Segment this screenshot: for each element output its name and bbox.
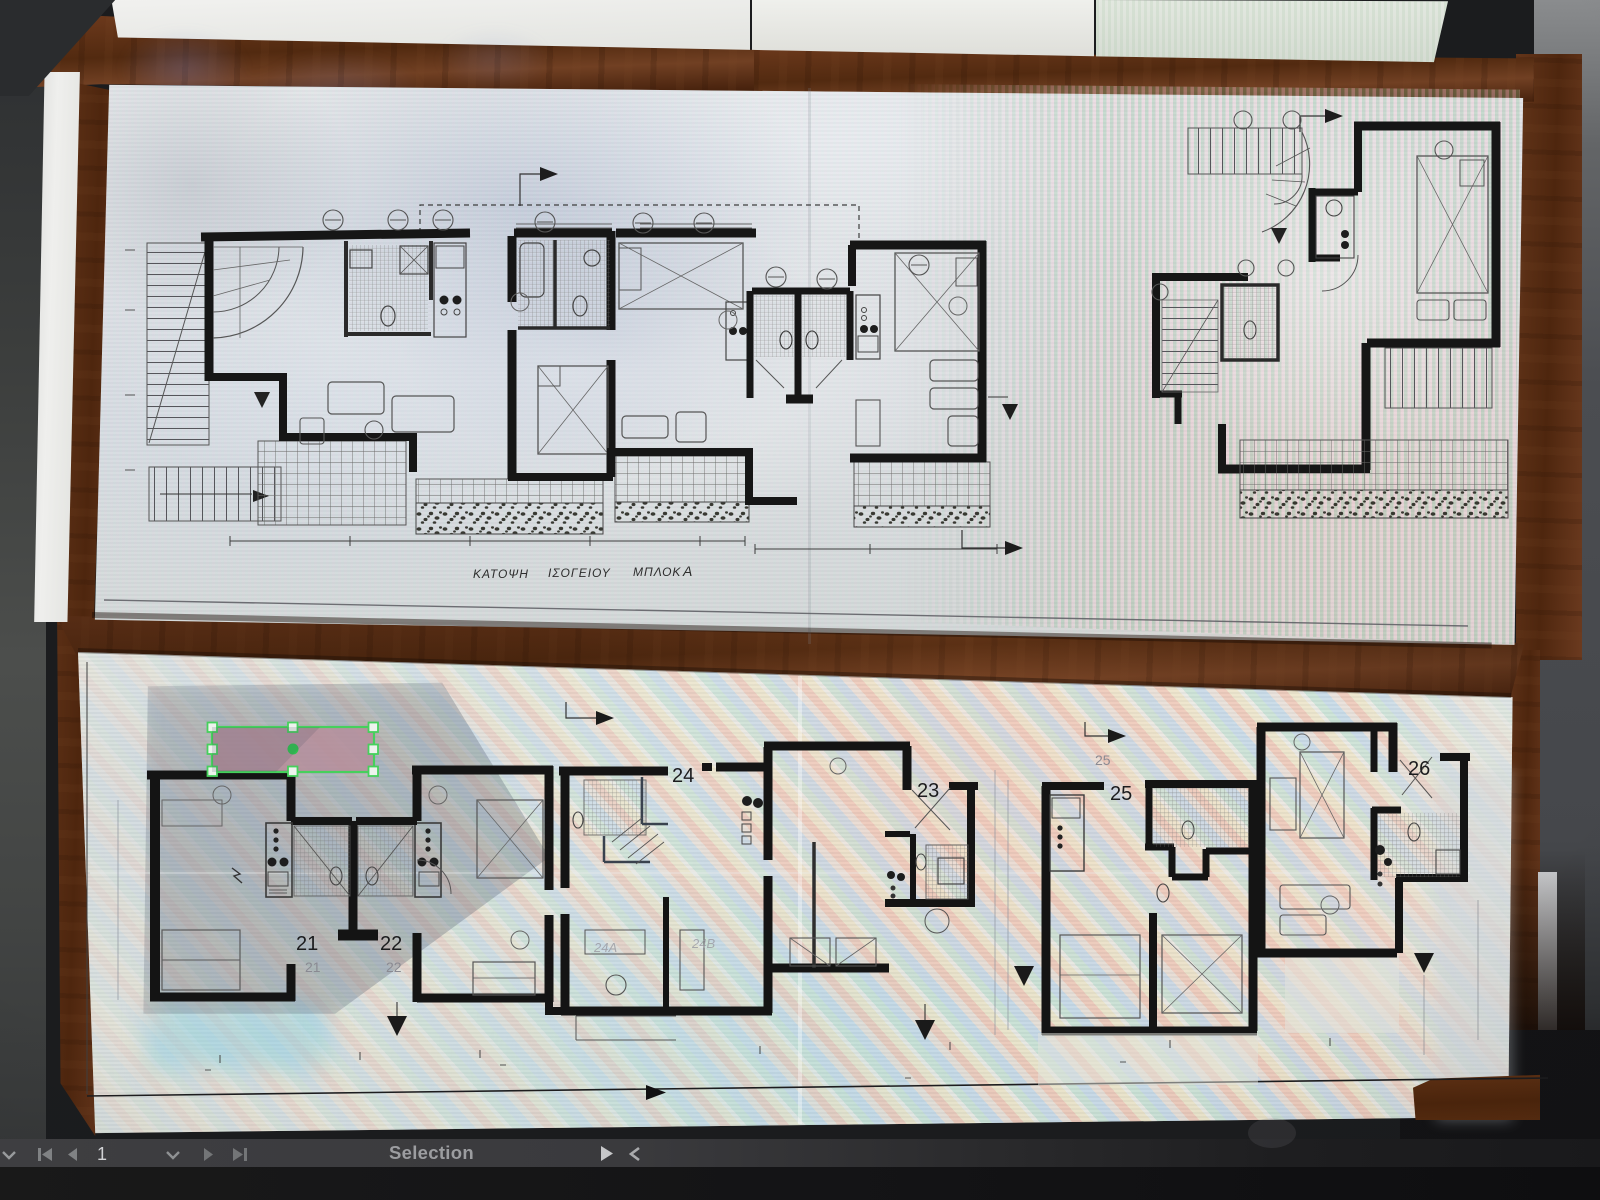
svg-text:24A: 24A <box>593 940 617 955</box>
svg-text:ΜΠΛΟΚ: ΜΠΛΟΚ <box>633 565 681 579</box>
svg-text:26: 26 <box>1408 758 1430 780</box>
svg-text:24B: 24B <box>691 936 715 951</box>
svg-text:21: 21 <box>296 933 318 955</box>
svg-text:1: 1 <box>97 1144 107 1164</box>
svg-text:23: 23 <box>917 780 939 802</box>
svg-text:24: 24 <box>672 765 694 787</box>
svg-text:25: 25 <box>1110 783 1132 805</box>
svg-text:22: 22 <box>380 933 402 955</box>
svg-text:Α: Α <box>682 563 692 579</box>
svg-text:21: 21 <box>305 959 321 975</box>
svg-text:ΚΑΤΟΨΗ: ΚΑΤΟΨΗ <box>473 567 529 581</box>
svg-text:ΙΣΟΓΕΙΟΥ: ΙΣΟΓΕΙΟΥ <box>548 566 611 580</box>
svg-text:25: 25 <box>1095 752 1111 768</box>
svg-text:Selection: Selection <box>389 1142 474 1163</box>
svg-text:22: 22 <box>386 959 402 975</box>
